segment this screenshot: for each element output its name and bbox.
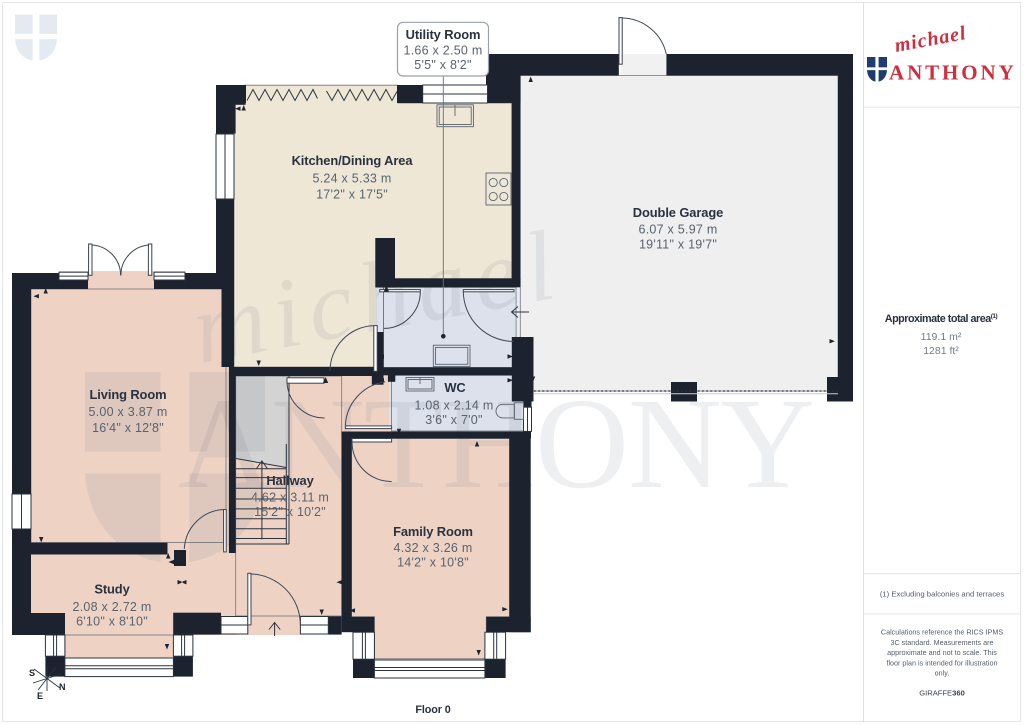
svg-text:Study: Study	[94, 582, 130, 597]
svg-text:Approximate total area(1): Approximate total area(1)	[885, 313, 998, 325]
svg-text:5.24 x 5.33 m: 5.24 x 5.33 m	[313, 172, 392, 186]
svg-text:4.32 x 3.26 m: 4.32 x 3.26 m	[394, 541, 473, 555]
svg-text:6.07 x 5.97 m: 6.07 x 5.97 m	[639, 223, 718, 237]
svg-text:Hallway: Hallway	[266, 473, 314, 488]
svg-text:19'11" x 19'7": 19'11" x 19'7"	[639, 238, 717, 252]
svg-text:3C standard. Measurements are: 3C standard. Measurements are	[890, 638, 993, 647]
svg-text:4.62 x 3.11 m: 4.62 x 3.11 m	[251, 491, 329, 505]
svg-text:Living Room: Living Room	[90, 387, 167, 402]
svg-text:5.00 x 3.87 m: 5.00 x 3.87 m	[89, 405, 168, 419]
svg-text:5'5" x 8'2": 5'5" x 8'2"	[414, 58, 471, 72]
svg-text:approximate and not to scale.: approximate and not to scale. This	[887, 648, 997, 657]
svg-text:GIRAFFE360: GIRAFFE360	[919, 689, 965, 698]
svg-text:Floor 0: Floor 0	[415, 704, 450, 716]
svg-text:2.08 x 2.72 m: 2.08 x 2.72 m	[73, 600, 152, 614]
svg-text:6'10" x 8'10": 6'10" x 8'10"	[76, 615, 148, 629]
svg-text:W: W	[46, 660, 55, 670]
svg-text:3'6" x 7'0": 3'6" x 7'0"	[425, 413, 482, 427]
svg-text:1.08 x 2.14 m: 1.08 x 2.14 m	[415, 399, 494, 413]
svg-text:WC: WC	[444, 380, 465, 395]
svg-text:Utility Room: Utility Room	[406, 27, 481, 42]
svg-text:ANTHONY: ANTHONY	[889, 61, 1017, 85]
svg-text:S: S	[29, 668, 35, 678]
svg-text:floor plan is intended for ill: floor plan is intended for illustration	[886, 658, 997, 667]
svg-text:17'2" x 17'5": 17'2" x 17'5"	[316, 188, 388, 202]
svg-text:15'2" x 10'2": 15'2" x 10'2"	[254, 505, 326, 519]
svg-text:119.1 m²: 119.1 m²	[921, 331, 962, 343]
svg-text:Kitchen/Dining Area: Kitchen/Dining Area	[292, 153, 414, 168]
svg-text:1.66 x 2.50 m: 1.66 x 2.50 m	[404, 44, 483, 58]
svg-text:N: N	[59, 682, 66, 692]
svg-text:Double Garage: Double Garage	[633, 205, 723, 220]
svg-text:Calculations reference the RIC: Calculations reference the RICS IPMS	[881, 628, 1003, 637]
svg-text:16'4" x 12'8": 16'4" x 12'8"	[92, 421, 164, 435]
svg-text:Family Room: Family Room	[393, 524, 473, 539]
svg-text:1281 ft²: 1281 ft²	[923, 345, 959, 357]
svg-text:14'2" x 10'8": 14'2" x 10'8"	[397, 556, 469, 570]
svg-text:only.: only.	[935, 669, 950, 678]
svg-text:(1) Excluding balconies and te: (1) Excluding balconies and terraces	[880, 590, 1005, 599]
svg-text:E: E	[37, 691, 43, 701]
